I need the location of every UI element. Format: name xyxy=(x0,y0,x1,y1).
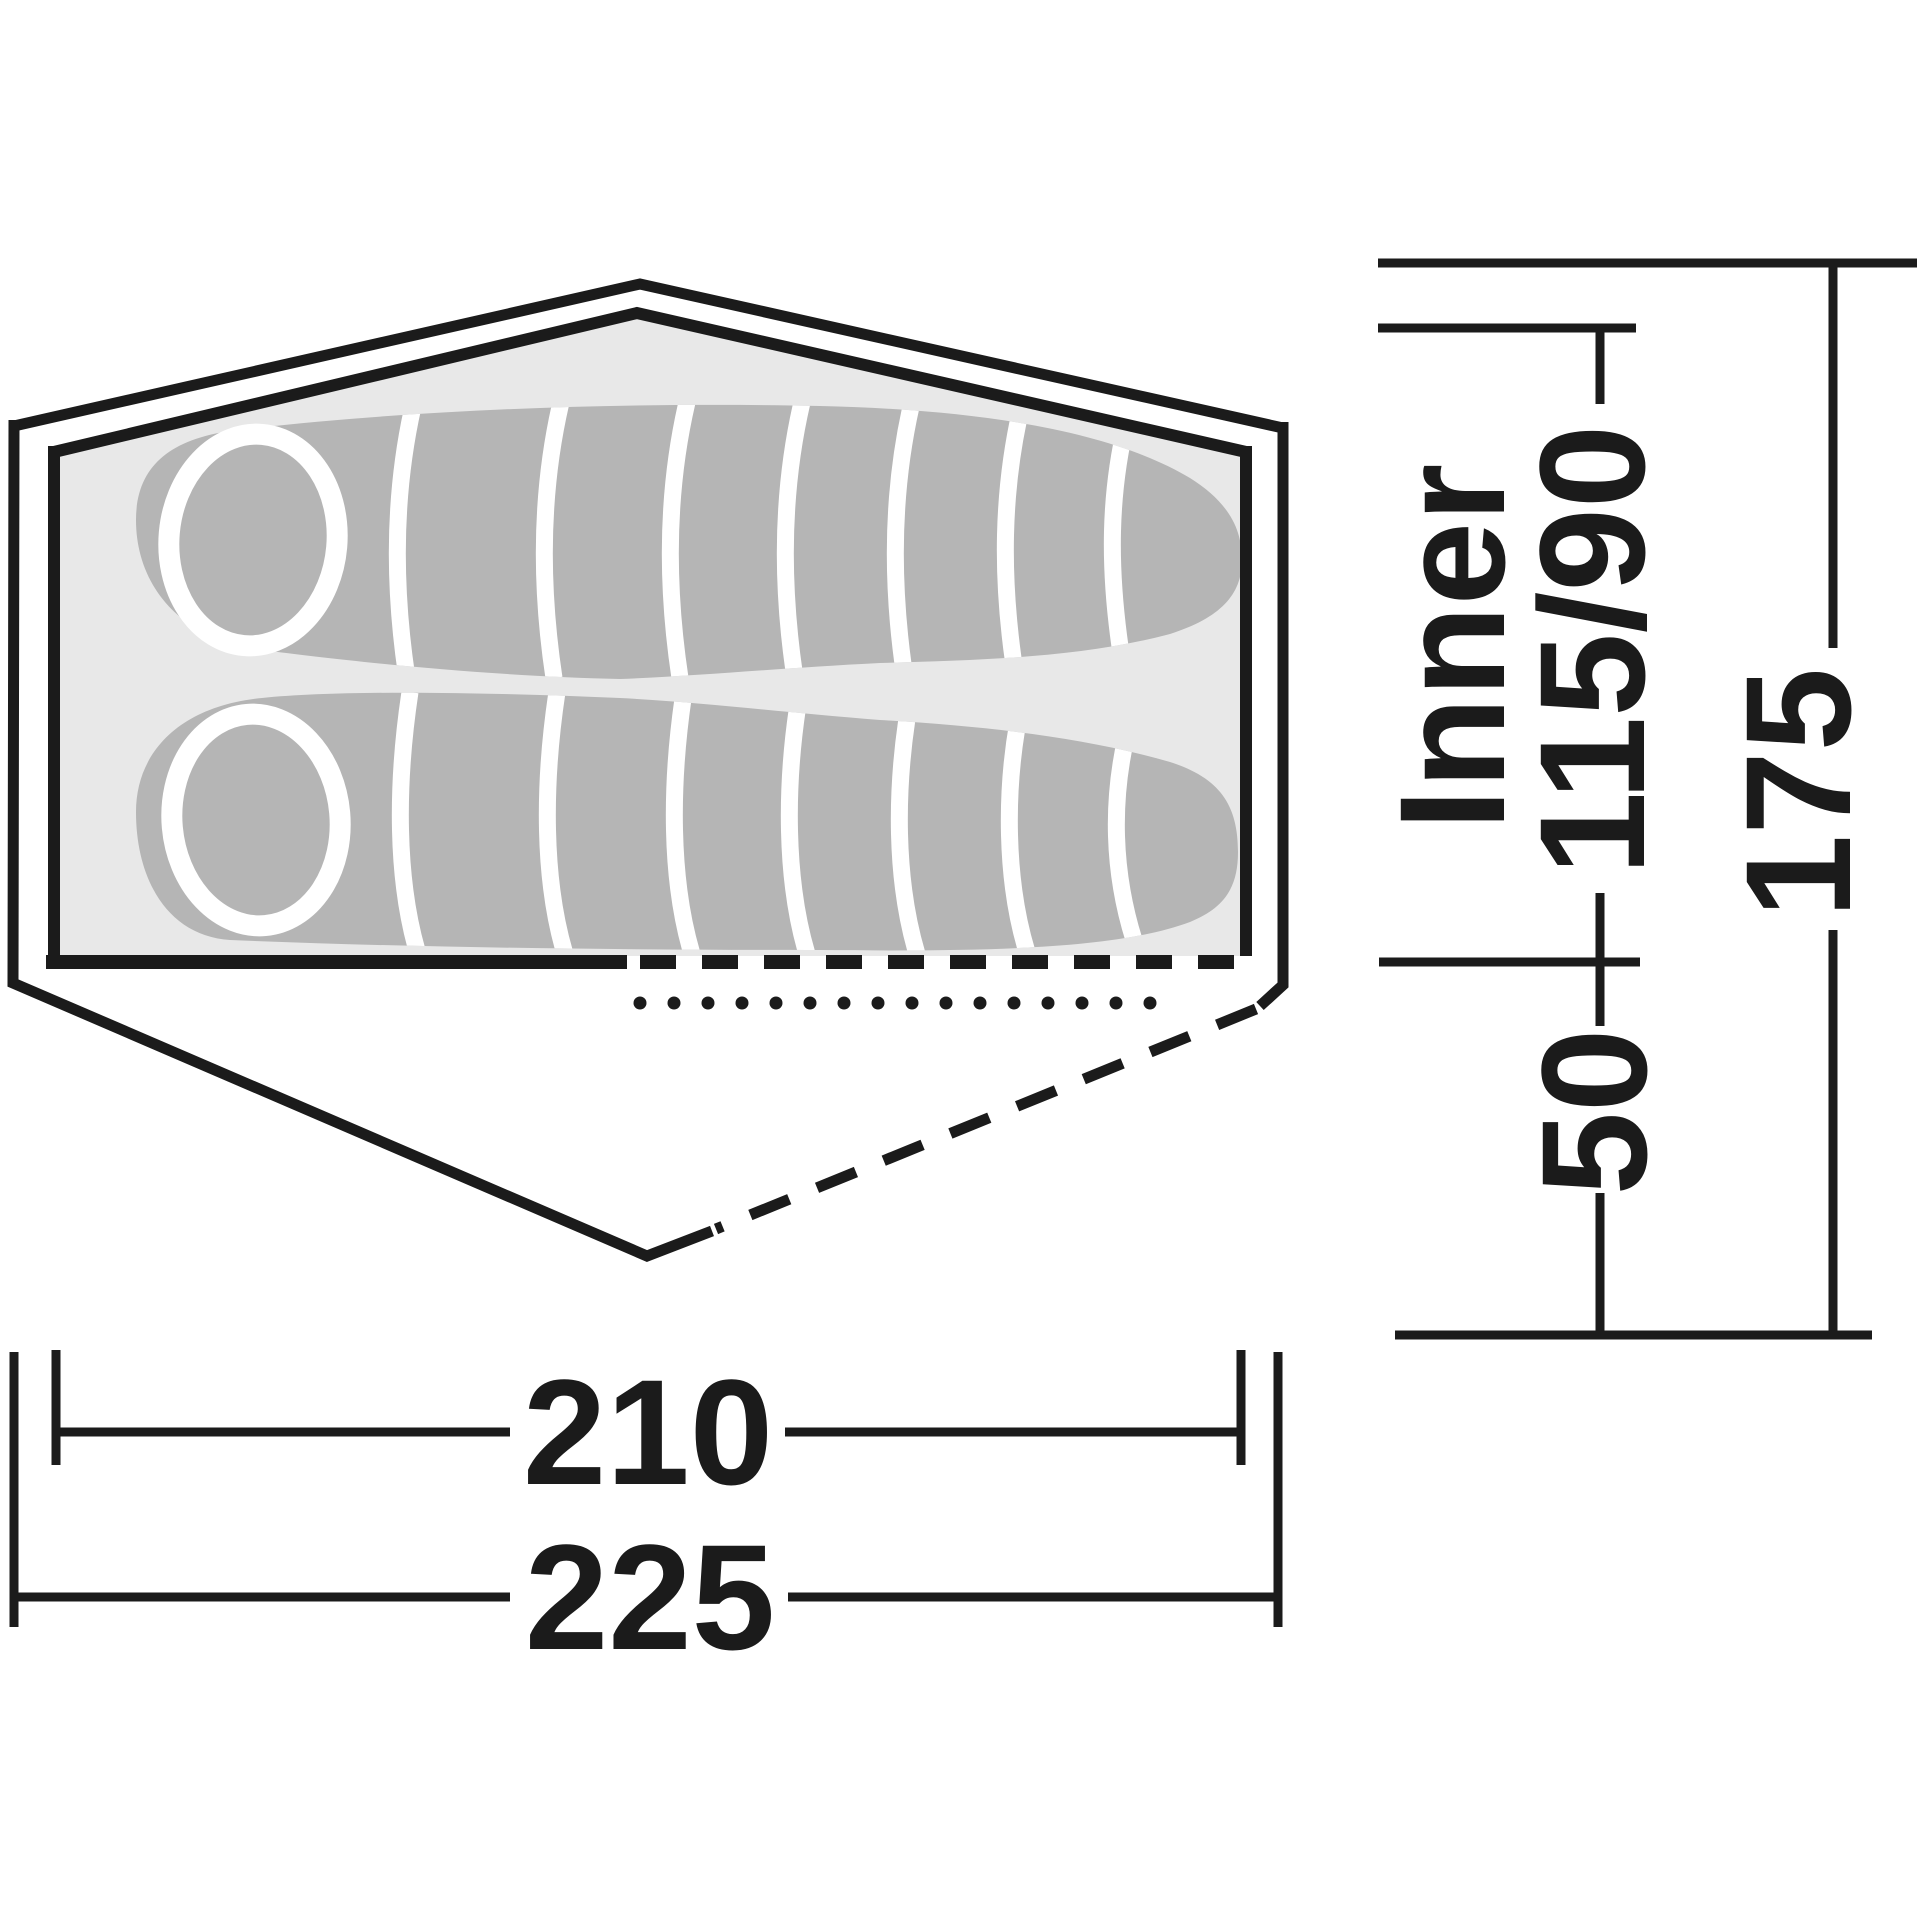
dotted-line xyxy=(634,997,1157,1010)
diagram-canvas: Inner 115/90 50 175 210 225 xyxy=(0,0,1920,1920)
tent-plan xyxy=(13,284,1283,1256)
width-dimensions: Inner 115/90 50 175 xyxy=(1368,263,1917,1335)
total-length-value: 225 xyxy=(525,1513,775,1681)
inner-width-value: 115/90 xyxy=(1508,425,1676,876)
inner-length-value: 210 xyxy=(523,1348,773,1516)
length-dimensions: 210 225 xyxy=(14,1348,1278,1681)
porch-dashed-line xyxy=(716,1009,1256,1229)
porch-depth-value: 50 xyxy=(1510,1029,1678,1196)
total-width-value: 175 xyxy=(1714,668,1882,918)
sleeping-bag-top xyxy=(136,398,1242,679)
tent-dimensions-diagram: Inner 115/90 50 175 210 225 xyxy=(0,0,1920,1920)
